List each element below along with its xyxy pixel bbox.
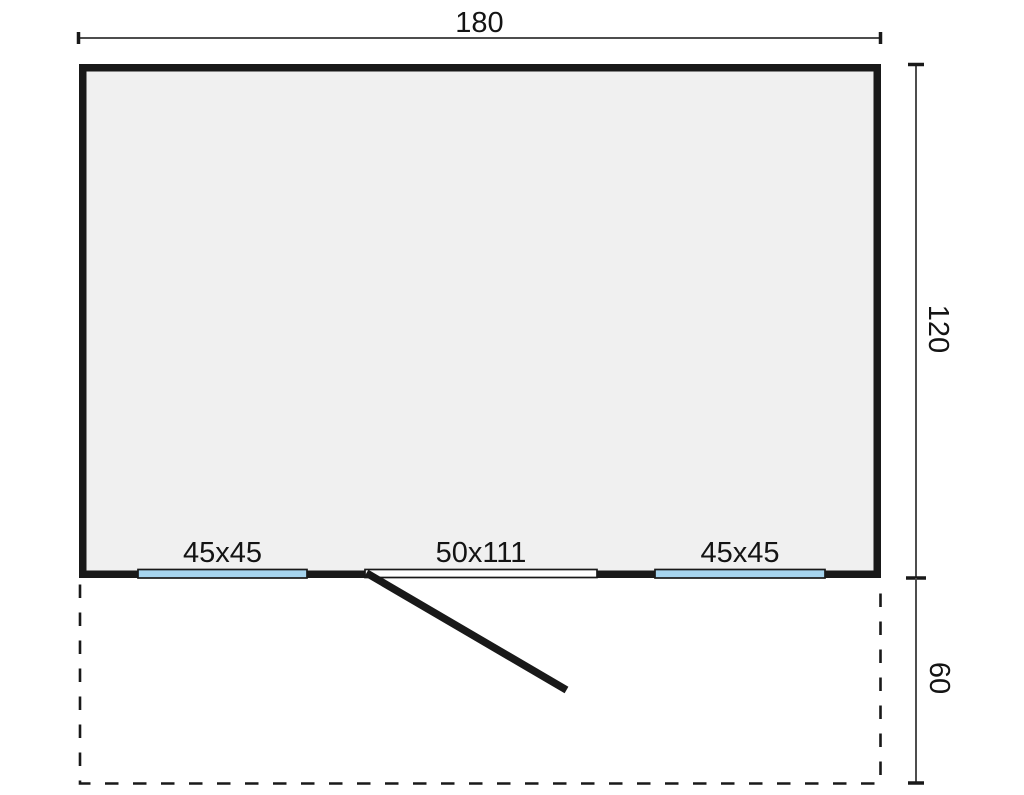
window-left — [138, 570, 307, 579]
floor-plan-drawing: 180 45x45 50x111 45x45 120 60 — [0, 0, 1024, 795]
width-dimension-label: 180 — [455, 7, 503, 39]
floor-plan-canvas: 180 45x45 50x111 45x45 120 60 — [0, 0, 1024, 795]
window-right-label: 45x45 — [700, 537, 779, 569]
door-label: 50x111 — [436, 537, 527, 569]
door-leaf-line — [367, 573, 567, 690]
terrace-depth-dimension: 60 — [908, 578, 955, 783]
building-interior — [87, 72, 874, 571]
terrace-dashed-outline — [80, 585, 881, 784]
terrace-depth-dimension-label: 60 — [923, 662, 955, 694]
window-left-label: 45x45 — [183, 537, 262, 569]
depth-dimension-label: 120 — [922, 305, 954, 353]
door-opening — [365, 570, 597, 578]
window-right — [655, 570, 825, 579]
width-dimension: 180 — [79, 7, 881, 44]
depth-dimension: 120 — [906, 65, 954, 579]
